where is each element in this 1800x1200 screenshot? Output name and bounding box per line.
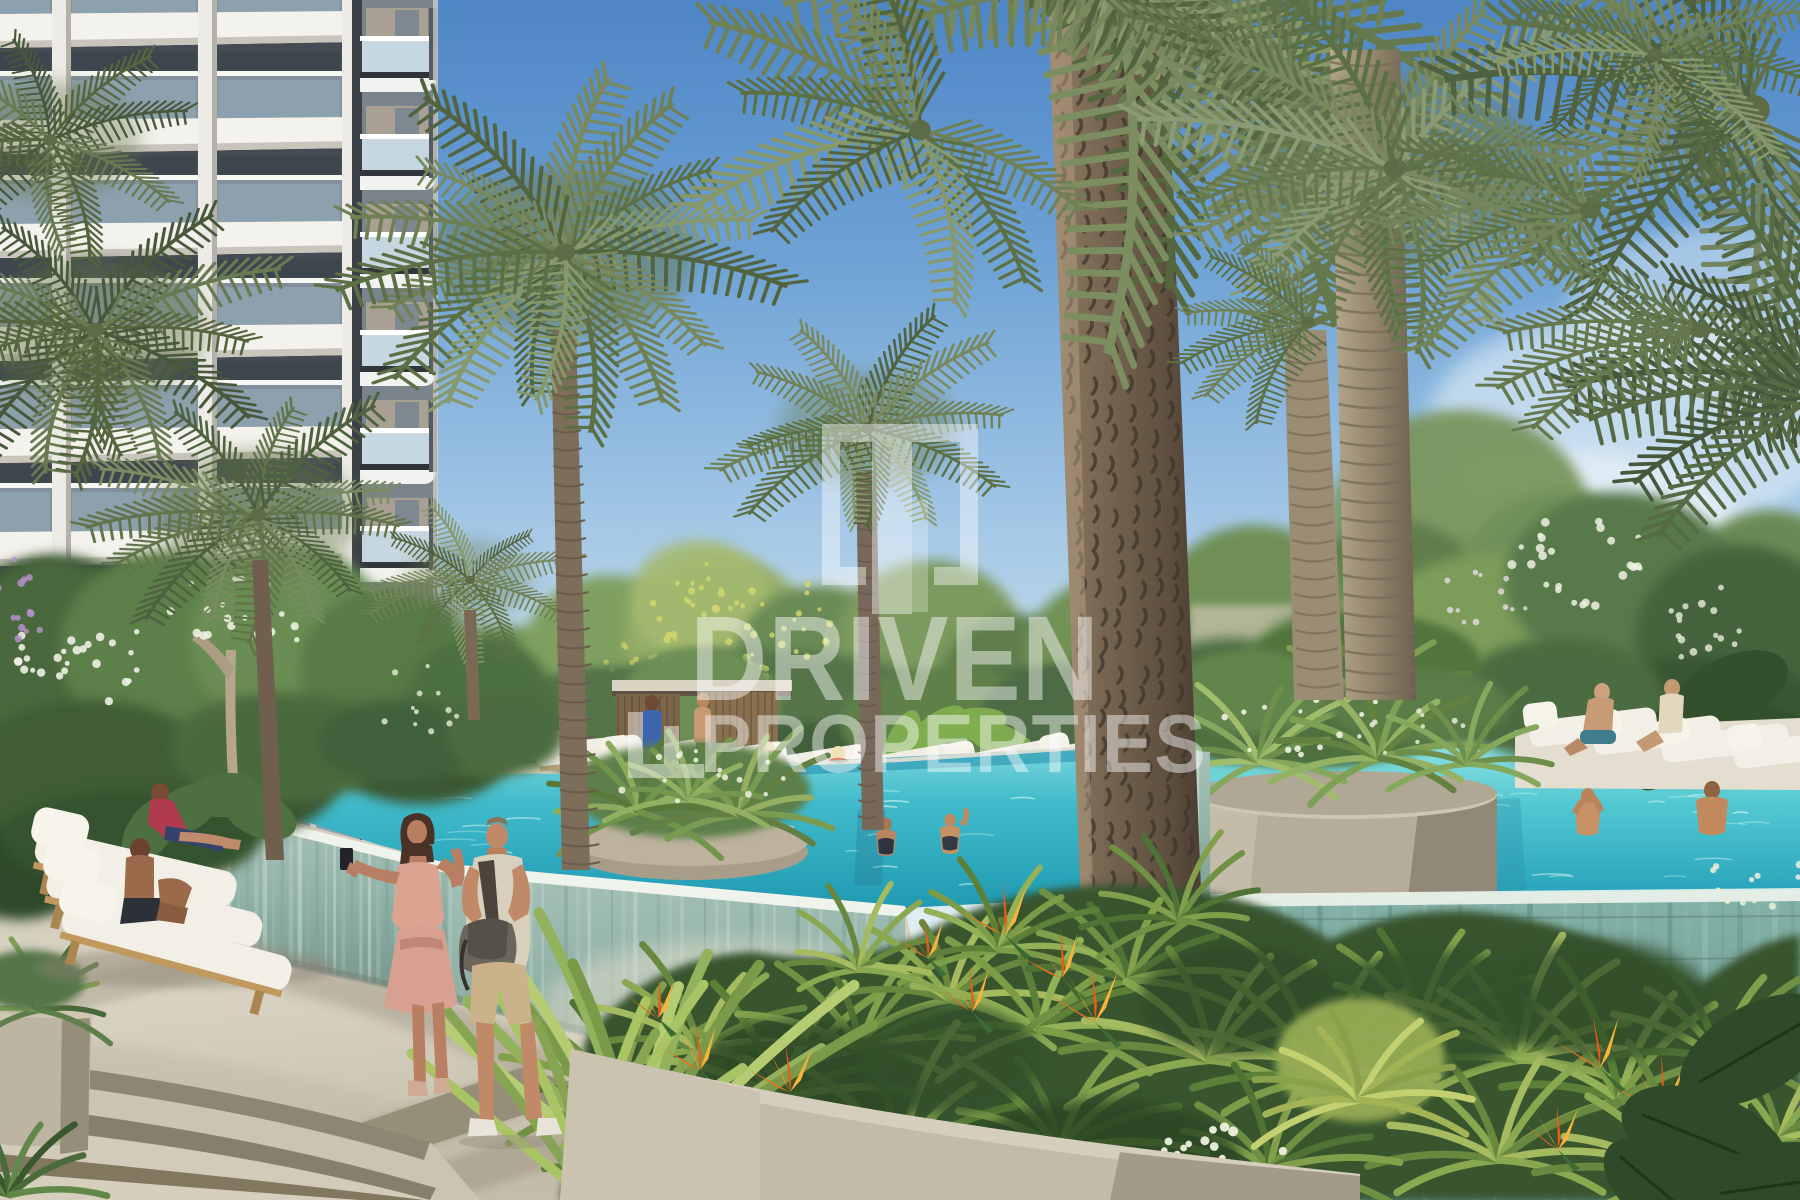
svg-text:PROPERTIES: PROPERTIES xyxy=(700,696,1207,789)
